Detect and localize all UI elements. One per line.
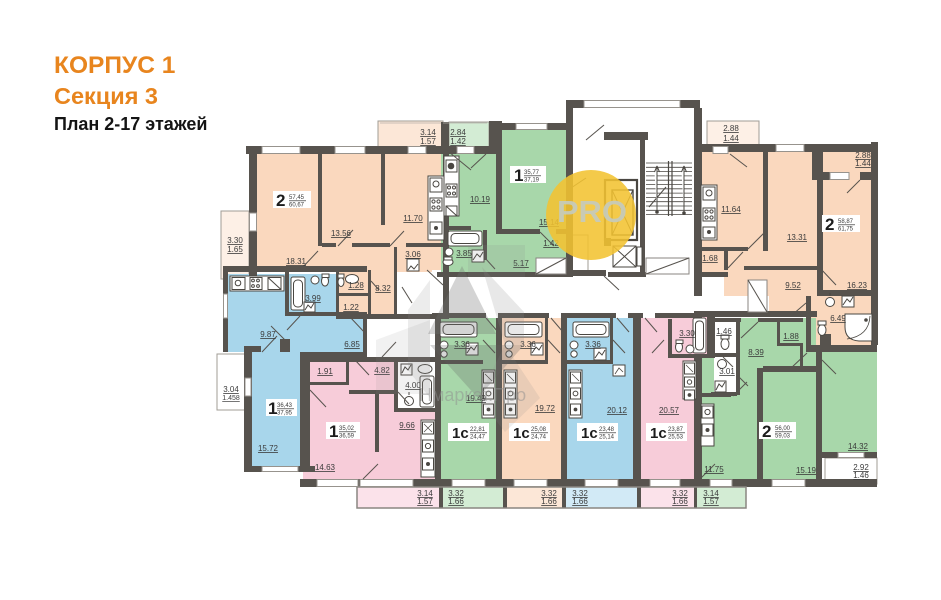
svg-text:3.30: 3.30 xyxy=(227,236,243,245)
svg-text:56,00: 56,00 xyxy=(775,426,791,432)
svg-text:1: 1 xyxy=(514,166,523,185)
svg-text:57,45: 57,45 xyxy=(289,195,305,201)
svg-text:1: 1 xyxy=(329,422,338,441)
svg-text:59,03: 59,03 xyxy=(775,434,791,440)
svg-text:3.36: 3.36 xyxy=(585,340,601,349)
svg-text:1.57: 1.57 xyxy=(420,137,436,146)
svg-text:20.57: 20.57 xyxy=(659,406,680,415)
svg-text:1.28: 1.28 xyxy=(348,281,364,290)
svg-text:24,47: 24,47 xyxy=(470,435,486,441)
svg-text:1.46: 1.46 xyxy=(716,327,732,336)
svg-text:Секция 3: Секция 3 xyxy=(54,83,158,109)
svg-text:План 2-17 этажей: План 2-17 этажей xyxy=(54,114,207,134)
svg-text:11.70: 11.70 xyxy=(403,214,423,223)
svg-text:19.72: 19.72 xyxy=(535,404,556,413)
svg-text:1.68: 1.68 xyxy=(702,254,718,263)
svg-text:6.49: 6.49 xyxy=(830,314,846,323)
svg-text:Нмаркет.Про: Нмаркет.Про xyxy=(419,385,526,405)
svg-text:9.52: 9.52 xyxy=(785,281,801,290)
svg-text:25,08: 25,08 xyxy=(531,427,547,433)
svg-text:9.87: 9.87 xyxy=(260,330,276,339)
svg-text:1.458: 1.458 xyxy=(222,395,240,402)
svg-text:14.32: 14.32 xyxy=(848,442,869,451)
svg-text:18.31: 18.31 xyxy=(286,257,307,266)
svg-text:35,77: 35,77 xyxy=(524,170,540,176)
svg-text:10.19: 10.19 xyxy=(470,195,491,204)
svg-text:6.85: 6.85 xyxy=(344,340,360,349)
svg-text:23,87: 23,87 xyxy=(668,427,684,433)
svg-text:61,75: 61,75 xyxy=(838,227,854,233)
svg-text:8.32: 8.32 xyxy=(375,284,391,293)
svg-text:37,95: 37,95 xyxy=(277,411,293,417)
svg-text:3.30: 3.30 xyxy=(679,329,695,338)
svg-text:2: 2 xyxy=(276,191,285,210)
svg-text:24,74: 24,74 xyxy=(531,435,547,441)
svg-text:1.44: 1.44 xyxy=(723,134,739,143)
svg-text:15.72: 15.72 xyxy=(258,444,279,453)
svg-text:3.99: 3.99 xyxy=(305,294,321,303)
svg-text:22,81: 22,81 xyxy=(470,427,486,433)
svg-text:1.91: 1.91 xyxy=(317,367,333,376)
svg-text:1.57: 1.57 xyxy=(703,497,719,506)
svg-text:14.63: 14.63 xyxy=(315,463,336,472)
svg-text:1.66: 1.66 xyxy=(541,497,557,506)
svg-text:1.22: 1.22 xyxy=(343,303,359,312)
svg-text:11.64: 11.64 xyxy=(721,205,741,214)
svg-text:1с: 1с xyxy=(650,425,667,442)
svg-text:PRO: PRO xyxy=(557,194,627,229)
svg-text:11.75: 11.75 xyxy=(704,465,724,474)
svg-text:15.19: 15.19 xyxy=(796,466,817,475)
svg-text:36,43: 36,43 xyxy=(277,403,293,409)
svg-text:1.46: 1.46 xyxy=(853,471,869,480)
svg-text:36,59: 36,59 xyxy=(339,434,355,440)
svg-text:60,67: 60,67 xyxy=(289,203,305,209)
svg-text:25,14: 25,14 xyxy=(599,435,615,441)
svg-text:1с: 1с xyxy=(581,425,598,442)
svg-text:2.88: 2.88 xyxy=(723,124,739,133)
svg-text:35,02: 35,02 xyxy=(339,426,355,432)
svg-text:16.23: 16.23 xyxy=(847,281,868,290)
svg-text:1.66: 1.66 xyxy=(572,497,588,506)
svg-text:КОРПУС 1: КОРПУС 1 xyxy=(54,52,175,79)
svg-text:1с: 1с xyxy=(452,425,469,442)
svg-text:13.31: 13.31 xyxy=(787,233,808,242)
svg-text:1.66: 1.66 xyxy=(672,497,688,506)
svg-text:25,53: 25,53 xyxy=(668,435,684,441)
svg-text:13.56: 13.56 xyxy=(331,229,352,238)
svg-text:2: 2 xyxy=(762,422,771,441)
svg-text:1.57: 1.57 xyxy=(417,497,433,506)
svg-text:1.44: 1.44 xyxy=(855,159,871,168)
svg-text:1с: 1с xyxy=(513,425,530,442)
svg-text:23,48: 23,48 xyxy=(599,427,615,433)
svg-text:1.66: 1.66 xyxy=(448,497,464,506)
svg-text:3.14: 3.14 xyxy=(420,128,436,137)
svg-text:2: 2 xyxy=(825,215,834,234)
svg-text:3.06: 3.06 xyxy=(405,250,421,259)
svg-text:58,87: 58,87 xyxy=(838,219,854,225)
svg-text:2.84: 2.84 xyxy=(450,128,466,137)
svg-text:8.39: 8.39 xyxy=(748,348,764,357)
svg-text:9.66: 9.66 xyxy=(399,421,415,430)
svg-text:37,19: 37,19 xyxy=(524,178,540,184)
svg-text:1.65: 1.65 xyxy=(227,245,243,254)
svg-text:1.42: 1.42 xyxy=(450,137,466,146)
svg-text:3.04: 3.04 xyxy=(223,385,239,394)
svg-text:20.12: 20.12 xyxy=(607,406,628,415)
svg-text:3.01: 3.01 xyxy=(719,367,735,376)
svg-text:1.88: 1.88 xyxy=(783,332,799,341)
